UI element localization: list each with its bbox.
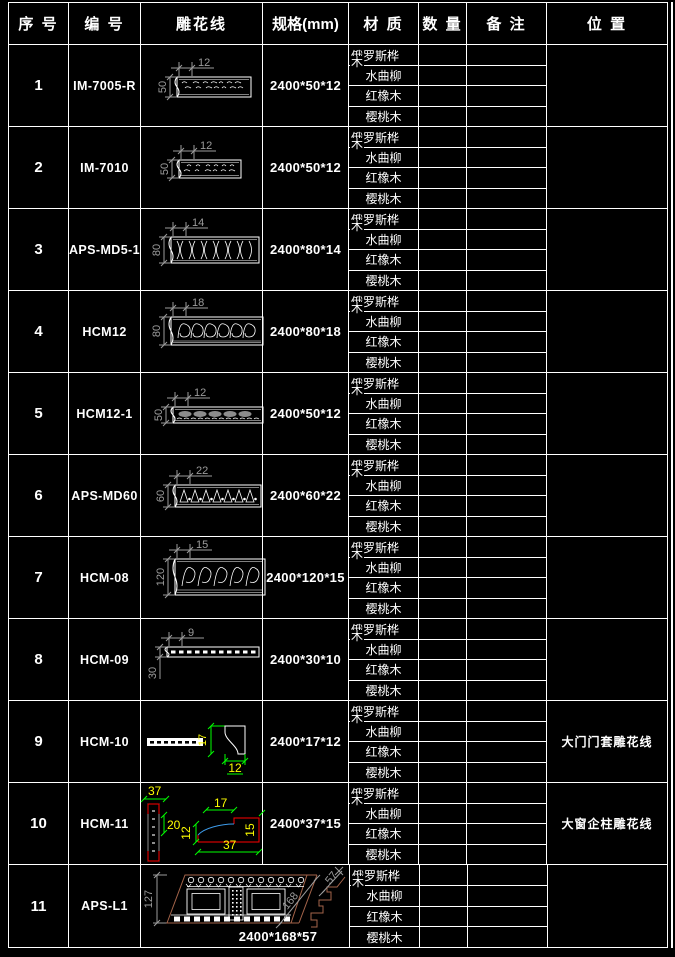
svg-text:12: 12 — [200, 140, 212, 152]
material-name: 红橡木 — [349, 414, 419, 434]
remark-cell — [467, 455, 546, 475]
header-col-0: 序 号 — [9, 3, 69, 44]
remark-cell — [467, 681, 546, 701]
material-name: 俄罗斯桦木 — [349, 291, 419, 311]
material-stripe: 俄罗斯桦木 — [349, 701, 546, 722]
quantity-cell — [419, 824, 467, 844]
quantity-cell — [419, 332, 467, 352]
hcm11-profile-drawing: 372017123715 — [141, 783, 263, 864]
strip-profile-drawing: 1880 — [141, 291, 263, 372]
material-stripe: 红橡木 — [349, 250, 546, 271]
svg-text:18: 18 — [192, 297, 204, 309]
material-name-wrap: 木 — [350, 384, 364, 396]
product-code: HCM-11 — [69, 783, 141, 864]
product-code: APS-L1 — [69, 865, 141, 947]
position-value — [547, 291, 667, 372]
material-stripe: 水曲柳 — [349, 804, 546, 825]
quantity-cell — [419, 804, 467, 824]
material-stripe: 水曲柳 — [349, 476, 546, 497]
table-header: 序 号编 号雕花线规格(mm)材 质数 量备 注位 置 — [9, 3, 667, 45]
product-code: HCM-09 — [69, 619, 141, 700]
material-name: 樱桃木 — [349, 763, 419, 783]
material-stripe: 樱桃木 — [349, 681, 546, 701]
material-stripe: 樱桃木 — [349, 107, 546, 127]
quantity-cell — [419, 250, 467, 270]
material-stripe: 俄罗斯桦木 — [349, 209, 546, 230]
spec-value: 2400*30*10 — [263, 619, 349, 700]
moulding-drawing: 1712 — [141, 701, 263, 782]
material-name: 俄罗斯桦木 — [349, 127, 419, 147]
serial-number: 2 — [9, 127, 69, 208]
material-stripe: 樱桃木 — [349, 271, 546, 291]
remark-cell — [467, 476, 546, 496]
material-name-wrap: 木 — [350, 630, 364, 642]
quantity-cell — [419, 435, 467, 455]
remark-cell — [467, 660, 546, 680]
serial-number: 9 — [9, 701, 69, 782]
material-name: 樱桃木 — [349, 599, 419, 619]
material-name: 红橡木 — [349, 742, 419, 762]
quantity-cell — [419, 845, 467, 865]
strip-profile-drawing: 1480 — [141, 209, 263, 290]
material-name: 俄罗斯桦木 — [349, 209, 419, 229]
svg-text:9: 9 — [188, 627, 194, 639]
quantity-cell — [419, 312, 467, 332]
material-stripe: 红橡木 — [349, 824, 546, 845]
material-stripe: 俄罗斯桦木 — [349, 291, 546, 312]
cad-spec-sheet: 序 号编 号雕花线规格(mm)材 质数 量备 注位 置 1 IM-7005-R … — [0, 0, 675, 957]
material-name: 俄罗斯桦木 — [349, 455, 419, 475]
svg-text:37: 37 — [223, 838, 237, 852]
header-col-7: 位 置 — [547, 3, 667, 44]
svg-text:127: 127 — [143, 890, 155, 908]
table-row: 8 HCM-09 930 2400*30*10 俄罗斯桦木水曲柳红橡木樱桃木 — [9, 619, 667, 701]
material-stripe: 水曲柳 — [349, 66, 546, 87]
moulding-drawing: 2260 — [141, 455, 263, 536]
svg-text:12: 12 — [194, 387, 206, 399]
position-value: 大窗企柱雕花线 — [547, 783, 667, 864]
remark-cell — [467, 107, 546, 127]
moulding-spec-table: 序 号编 号雕花线规格(mm)材 质数 量备 注位 置 1 IM-7005-R … — [8, 2, 668, 948]
material-stripe: 红橡木 — [349, 86, 546, 107]
svg-text:37: 37 — [148, 784, 162, 798]
moulding-drawing: 15120 — [141, 537, 263, 618]
moulding-drawing: 127168572400*168*57 — [141, 865, 350, 947]
quantity-cell — [420, 886, 468, 906]
svg-text:168: 168 — [280, 890, 301, 912]
remark-cell — [467, 599, 546, 619]
spec-value: 2400*17*12 — [263, 701, 349, 782]
remark-cell — [467, 640, 546, 660]
svg-text:17: 17 — [214, 796, 228, 810]
spec-value: 2400*120*15 — [263, 537, 349, 618]
remark-cell — [467, 845, 546, 865]
material-stripe: 红橡木 — [349, 496, 546, 517]
quantity-cell — [419, 107, 467, 127]
quantity-cell — [419, 599, 467, 619]
remark-cell — [467, 291, 546, 311]
quantity-cell — [419, 558, 467, 578]
material-name-wrap: 木 — [350, 794, 364, 806]
svg-text:22: 22 — [196, 465, 208, 477]
spec-value: 2400*50*12 — [263, 45, 349, 126]
material-name: 樱桃木 — [349, 271, 419, 291]
quantity-cell — [420, 907, 468, 927]
material-name-wrap: 木 — [350, 220, 364, 232]
quantity-cell — [419, 168, 467, 188]
table-body: 1 IM-7005-R 1250 2400*50*12 俄罗斯桦木水曲柳红橡木樱… — [9, 45, 667, 947]
spec-value: 2400*168*57 — [239, 929, 318, 944]
material-stripe: 红橡木 — [349, 742, 546, 763]
remark-cell — [468, 865, 547, 885]
material-name: 俄罗斯桦木 — [349, 373, 419, 393]
remark-cell — [467, 250, 546, 270]
strip-profile-drawing: 1250 — [141, 373, 263, 454]
material-stripe: 俄罗斯桦木 — [350, 865, 547, 886]
position-value — [548, 865, 667, 947]
quantity-cell — [419, 66, 467, 86]
position-value — [547, 45, 667, 126]
table-row: 5 HCM12-1 1250 2400*50*12 俄罗斯桦木水曲柳红橡木樱桃木 — [9, 373, 667, 455]
quantity-cell — [419, 189, 467, 209]
svg-text:120: 120 — [155, 568, 167, 586]
quantity-cell — [419, 742, 467, 762]
remark-cell — [467, 312, 546, 332]
quantity-cell — [419, 373, 467, 393]
strip-profile-drawing: 1250 — [141, 45, 263, 126]
remark-cell — [467, 517, 546, 537]
remark-cell — [467, 496, 546, 516]
moulding-drawing: 1880 — [141, 291, 263, 372]
remark-cell — [467, 271, 546, 291]
remark-cell — [467, 435, 546, 455]
material-name-wrap: 木 — [350, 548, 364, 560]
quantity-cell — [419, 148, 467, 168]
table-row: 2 IM-7010 1250 2400*50*12 俄罗斯桦木水曲柳红橡木樱桃木 — [9, 127, 667, 209]
material-stripe: 红橡木 — [349, 578, 546, 599]
material-name-wrap: 木 — [351, 876, 365, 888]
svg-text:12: 12 — [228, 761, 242, 775]
moulding-drawing: 1480 — [141, 209, 263, 290]
header-col-1: 编 号 — [69, 3, 141, 44]
moulding-drawing: 1250 — [141, 373, 263, 454]
remark-cell — [467, 66, 546, 86]
product-code: HCM-10 — [69, 701, 141, 782]
material-stripe: 樱桃木 — [349, 435, 546, 455]
material-stripe: 樱桃木 — [349, 763, 546, 783]
quantity-cell — [419, 476, 467, 496]
material-block: 俄罗斯桦木水曲柳红橡木樱桃木 — [349, 701, 547, 782]
remark-cell — [467, 394, 546, 414]
quantity-cell — [419, 701, 467, 721]
serial-number: 11 — [9, 865, 69, 947]
remark-cell — [467, 824, 546, 844]
product-code: APS-MD5-1 — [69, 209, 141, 290]
remark-cell — [467, 414, 546, 434]
material-name: 樱桃木 — [349, 353, 419, 373]
position-value: 大门门套雕花线 — [547, 701, 667, 782]
material-stripe: 俄罗斯桦木 — [349, 537, 546, 558]
material-name: 红橡木 — [349, 824, 419, 844]
material-block: 俄罗斯桦木水曲柳红橡木樱桃木 — [350, 865, 548, 947]
material-name-wrap: 木 — [350, 56, 364, 68]
spec-value: 2400*80*14 — [263, 209, 349, 290]
quantity-cell — [419, 517, 467, 537]
remark-cell — [467, 558, 546, 578]
quantity-cell — [419, 783, 467, 803]
quantity-cell — [419, 681, 467, 701]
quantity-cell — [419, 660, 467, 680]
quantity-cell — [419, 45, 467, 65]
material-block: 俄罗斯桦木水曲柳红橡木樱桃木 — [349, 373, 547, 454]
strip-profile-drawing: 15120 — [141, 537, 263, 618]
material-block: 俄罗斯桦木水曲柳红橡木樱桃木 — [349, 209, 547, 290]
header-col-5: 数 量 — [419, 3, 467, 44]
material-block: 俄罗斯桦木水曲柳红橡木樱桃木 — [349, 619, 547, 700]
material-name: 红橡木 — [349, 332, 419, 352]
serial-number: 1 — [9, 45, 69, 126]
material-name: 红橡木 — [349, 578, 419, 598]
remark-cell — [467, 722, 546, 742]
material-stripe: 红橡木 — [350, 907, 547, 928]
header-col-4: 材 质 — [349, 3, 419, 44]
material-block: 俄罗斯桦木水曲柳红橡木樱桃木 — [349, 537, 547, 618]
table-row: 10 HCM-11 372017123715 2400*37*15 俄罗斯桦木水… — [9, 783, 667, 865]
remark-cell — [467, 127, 546, 147]
table-row: 3 APS-MD5-1 1480 2400*80*14 俄罗斯桦木水曲柳红橡木樱… — [9, 209, 667, 291]
material-stripe: 樱桃木 — [349, 599, 546, 619]
remark-cell — [467, 373, 546, 393]
material-stripe: 俄罗斯桦木 — [349, 45, 546, 66]
product-code: IM-7005-R — [69, 45, 141, 126]
quantity-cell — [419, 353, 467, 373]
quantity-cell — [419, 209, 467, 229]
svg-text:14: 14 — [192, 217, 204, 229]
material-name: 红橡木 — [349, 168, 419, 188]
material-block: 俄罗斯桦木水曲柳红橡木樱桃木 — [349, 45, 547, 126]
remark-cell — [467, 619, 546, 639]
material-name: 红橡木 — [349, 660, 419, 680]
remark-cell — [467, 537, 546, 557]
material-stripe: 红橡木 — [349, 660, 546, 681]
material-stripe: 水曲柳 — [349, 722, 546, 743]
quantity-cell — [419, 763, 467, 783]
remark-cell — [467, 332, 546, 352]
material-name: 俄罗斯桦木 — [349, 619, 419, 639]
strip-profile-drawing: 1250 — [141, 127, 263, 208]
remark-cell — [467, 168, 546, 188]
strip-profile-drawing: 930 — [141, 619, 263, 700]
serial-number: 8 — [9, 619, 69, 700]
remark-cell — [468, 886, 547, 906]
product-code: HCM12-1 — [69, 373, 141, 454]
spec-value: 2400*60*22 — [263, 455, 349, 536]
material-stripe: 俄罗斯桦木 — [349, 373, 546, 394]
serial-number: 10 — [9, 783, 69, 864]
table-row: 9 HCM-10 1712 2400*17*12 俄罗斯桦木水曲柳红橡木樱桃木 … — [9, 701, 667, 783]
spec-value: 2400*50*12 — [263, 373, 349, 454]
material-name-wrap: 木 — [350, 466, 364, 478]
material-stripe: 俄罗斯桦木 — [349, 783, 546, 804]
material-name: 樱桃木 — [349, 845, 419, 865]
position-value — [547, 373, 667, 454]
quantity-cell — [419, 496, 467, 516]
serial-number: 4 — [9, 291, 69, 372]
quantity-cell — [420, 865, 468, 885]
svg-text:80: 80 — [151, 325, 163, 337]
remark-cell — [467, 148, 546, 168]
svg-text:50: 50 — [159, 163, 171, 175]
material-stripe: 俄罗斯桦木 — [349, 127, 546, 148]
hcm10-profile-drawing: 1712 — [141, 701, 263, 782]
table-row: 11 APS-L1 127168572400*168*57 2400*168*5… — [9, 865, 667, 947]
svg-text:17: 17 — [197, 734, 209, 746]
quantity-cell — [419, 127, 467, 147]
remark-cell — [467, 209, 546, 229]
table-row: 6 APS-MD60 2260 2400*60*22 俄罗斯桦木水曲柳红橡木樱桃… — [9, 455, 667, 537]
material-name-wrap: 木 — [350, 138, 364, 150]
material-name: 俄罗斯桦木 — [349, 45, 419, 65]
quantity-cell — [419, 291, 467, 311]
strip-profile-drawing: 2260 — [141, 455, 263, 536]
quantity-cell — [419, 455, 467, 475]
remark-cell — [468, 927, 547, 947]
material-stripe: 水曲柳 — [349, 394, 546, 415]
remark-cell — [467, 701, 546, 721]
remark-cell — [467, 578, 546, 598]
remark-cell — [467, 353, 546, 373]
moulding-drawing: 1250 — [141, 127, 263, 208]
quantity-cell — [419, 86, 467, 106]
svg-text:50: 50 — [157, 81, 169, 93]
position-value — [547, 455, 667, 536]
moulding-drawing: 930 — [141, 619, 263, 700]
position-value — [547, 619, 667, 700]
svg-text:12: 12 — [179, 826, 193, 840]
material-stripe: 水曲柳 — [350, 886, 547, 907]
product-code: HCM12 — [69, 291, 141, 372]
material-name: 樱桃木 — [349, 435, 419, 455]
serial-number: 6 — [9, 455, 69, 536]
material-block: 俄罗斯桦木水曲柳红橡木樱桃木 — [349, 127, 547, 208]
material-name: 红橡木 — [349, 496, 419, 516]
quantity-cell — [420, 927, 468, 947]
material-stripe: 水曲柳 — [349, 312, 546, 333]
svg-text:15: 15 — [196, 539, 208, 551]
remark-cell — [467, 86, 546, 106]
spec-value: 2400*80*18 — [263, 291, 349, 372]
quantity-cell — [419, 619, 467, 639]
quantity-cell — [419, 640, 467, 660]
material-block: 俄罗斯桦木水曲柳红橡木樱桃木 — [349, 455, 547, 536]
remark-cell — [467, 45, 546, 65]
header-col-3: 规格(mm) — [263, 3, 349, 44]
product-code: IM-7010 — [69, 127, 141, 208]
remark-cell — [467, 230, 546, 250]
material-stripe: 樱桃木 — [350, 927, 547, 947]
product-code: HCM-08 — [69, 537, 141, 618]
product-code: APS-MD60 — [69, 455, 141, 536]
material-name: 俄罗斯桦木 — [350, 865, 420, 885]
quantity-cell — [419, 394, 467, 414]
material-name: 樱桃木 — [349, 189, 419, 209]
table-row: 7 HCM-08 15120 2400*120*15 俄罗斯桦木水曲柳红橡木樱桃… — [9, 537, 667, 619]
header-col-6: 备 注 — [467, 3, 547, 44]
position-value — [547, 537, 667, 618]
material-name-wrap: 木 — [350, 712, 364, 724]
serial-number: 3 — [9, 209, 69, 290]
material-stripe: 红橡木 — [349, 332, 546, 353]
spec-value: 2400*37*15 — [263, 783, 349, 864]
remark-cell — [468, 907, 547, 927]
quantity-cell — [419, 271, 467, 291]
material-name: 俄罗斯桦木 — [349, 701, 419, 721]
material-name: 俄罗斯桦木 — [349, 783, 419, 803]
svg-text:15: 15 — [243, 823, 257, 837]
position-value — [547, 209, 667, 290]
material-stripe: 水曲柳 — [349, 148, 546, 169]
material-block: 俄罗斯桦木水曲柳红橡木樱桃木 — [349, 291, 547, 372]
material-stripe: 红橡木 — [349, 168, 546, 189]
material-name: 樱桃木 — [349, 107, 419, 127]
remark-cell — [467, 804, 546, 824]
material-stripe: 樱桃木 — [349, 517, 546, 537]
material-name: 红橡木 — [350, 907, 420, 927]
material-stripe: 水曲柳 — [349, 640, 546, 661]
moulding-drawing: 1250 — [141, 45, 263, 126]
material-stripe: 俄罗斯桦木 — [349, 619, 546, 640]
svg-text:80: 80 — [151, 244, 163, 256]
remark-cell — [467, 742, 546, 762]
remark-cell — [467, 783, 546, 803]
svg-text:30: 30 — [147, 667, 159, 679]
remark-cell — [467, 189, 546, 209]
material-name: 樱桃木 — [350, 927, 420, 947]
svg-text:50: 50 — [153, 409, 165, 421]
material-name: 红橡木 — [349, 250, 419, 270]
quantity-cell — [419, 537, 467, 557]
header-col-2: 雕花线 — [141, 3, 263, 44]
serial-number: 7 — [9, 537, 69, 618]
serial-number: 5 — [9, 373, 69, 454]
material-name: 红橡木 — [349, 86, 419, 106]
moulding-drawing: 372017123715 — [141, 783, 263, 864]
table-outer-border — [671, 2, 673, 948]
material-stripe: 樱桃木 — [349, 845, 546, 865]
position-value — [547, 127, 667, 208]
material-name-wrap: 木 — [350, 302, 364, 314]
quantity-cell — [419, 722, 467, 742]
material-name: 俄罗斯桦木 — [349, 537, 419, 557]
svg-text:12: 12 — [198, 57, 210, 69]
material-block: 俄罗斯桦木水曲柳红橡木樱桃木 — [349, 783, 547, 864]
material-name: 樱桃木 — [349, 681, 419, 701]
material-stripe: 红橡木 — [349, 414, 546, 435]
material-stripe: 水曲柳 — [349, 558, 546, 579]
material-stripe: 俄罗斯桦木 — [349, 455, 546, 476]
spec-value: 2400*50*12 — [263, 127, 349, 208]
material-stripe: 樱桃木 — [349, 353, 546, 373]
quantity-cell — [419, 414, 467, 434]
material-stripe: 水曲柳 — [349, 230, 546, 251]
material-stripe: 樱桃木 — [349, 189, 546, 209]
table-row: 1 IM-7005-R 1250 2400*50*12 俄罗斯桦木水曲柳红橡木樱… — [9, 45, 667, 127]
table-row: 4 HCM12 1880 2400*80*18 俄罗斯桦木水曲柳红橡木樱桃木 — [9, 291, 667, 373]
quantity-cell — [419, 578, 467, 598]
remark-cell — [467, 763, 546, 783]
quantity-cell — [419, 230, 467, 250]
material-name: 樱桃木 — [349, 517, 419, 537]
